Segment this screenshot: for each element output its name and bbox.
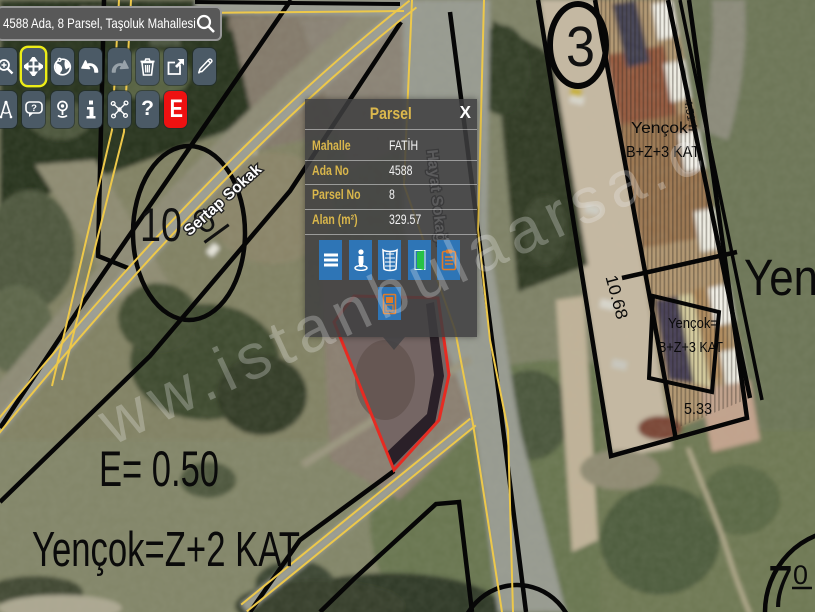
svg-text:B+Z+3 KAT: B+Z+3 KAT [658, 339, 723, 356]
svg-text:Yenç: Yenç [744, 249, 815, 306]
svg-text:5.33: 5.33 [684, 401, 712, 418]
svg-text:Yençok=: Yençok= [668, 315, 718, 332]
svg-text:0: 0 [793, 560, 808, 590]
svg-text:3: 3 [566, 15, 595, 79]
svg-text:10: 10 [140, 198, 182, 251]
svg-text:B+Z+3 KAT: B+Z+3 KAT [626, 144, 700, 161]
svg-text:?: ? [31, 103, 37, 114]
svg-text:10.68: 10.68 [602, 273, 632, 321]
svg-text:7: 7 [768, 554, 793, 612]
svg-text:Yençok=Z+2 KAT: Yençok=Z+2 KAT [32, 523, 300, 577]
svg-text:E= 0.50: E= 0.50 [99, 441, 219, 497]
svg-text:Yençok=: Yençok= [631, 120, 698, 137]
